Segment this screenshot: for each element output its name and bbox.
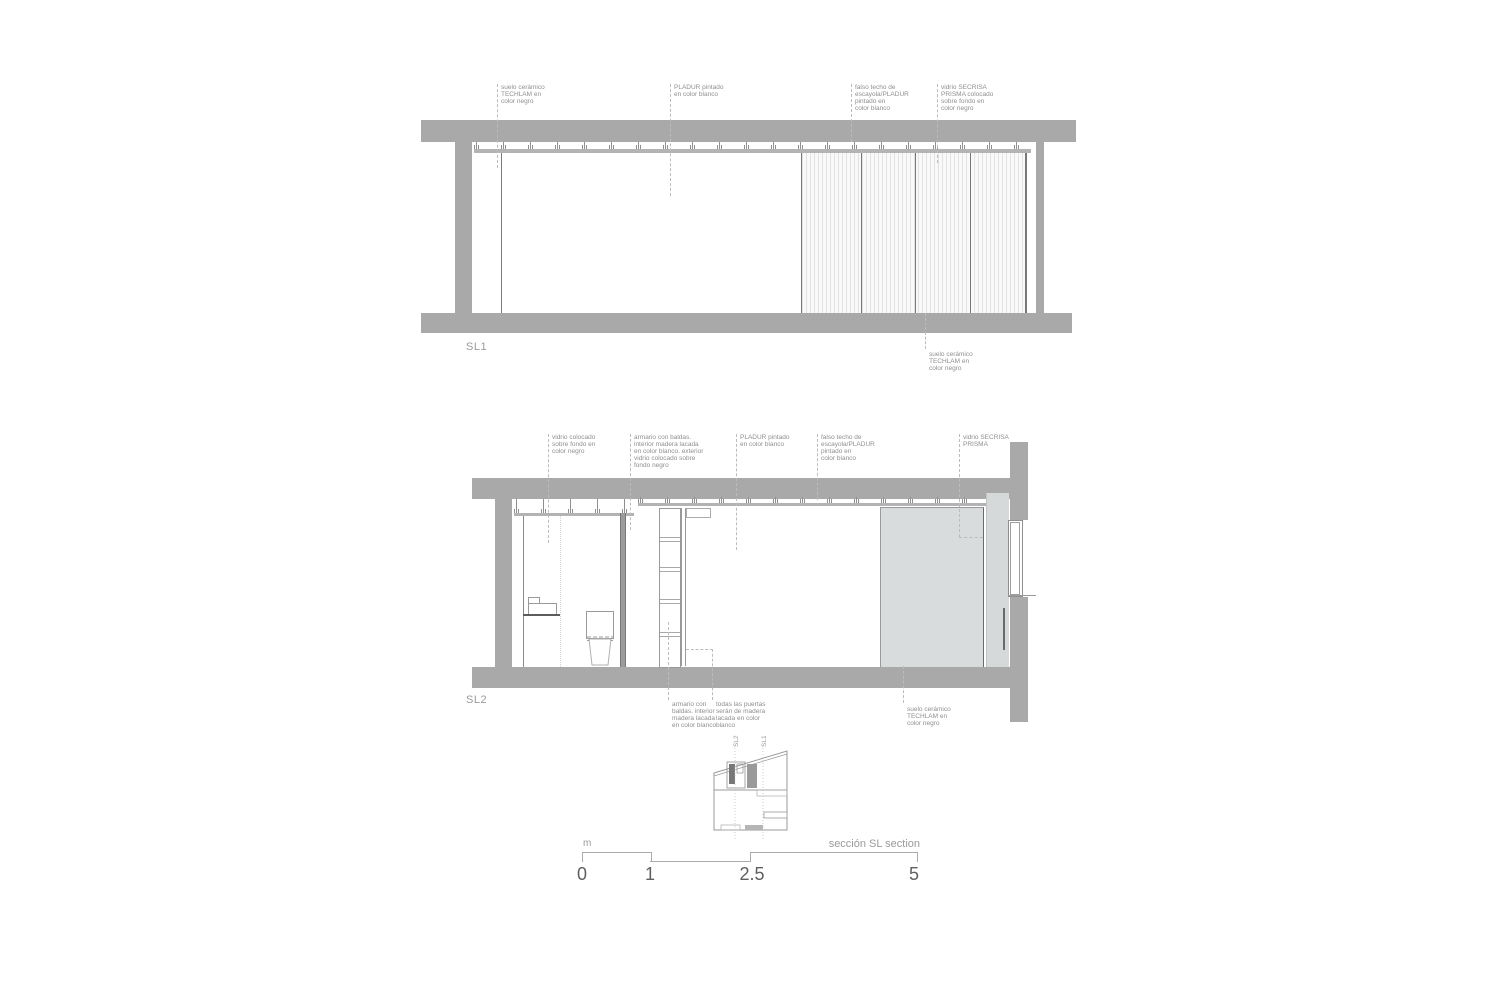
sl2-soffit-box [686,508,711,518]
sl2-left-column [495,499,512,667]
sl1-annotation-pladur: PLADUR pintado en color blanco [674,84,724,98]
sl1-ceiling-hangers [474,142,1031,149]
sl1-annotation-suelo-top: suelo cerámico TECHLAM en color negro [501,84,545,105]
scale-tick-0: 0 [577,864,587,885]
cabinet-shelf [660,599,680,604]
sl2-leader-puertas-arm [686,649,713,650]
sl1-floor-slab [421,313,1072,333]
sl2-annotation-vidrio-secrisa: vidrio SECRISA PRISMA [963,434,1009,448]
scale-segment-0-1 [582,852,652,862]
sl1-leader-suelo-bottom [925,313,926,349]
sl1-ceiling-slab [421,120,1076,142]
sl1-wall-line [501,153,502,313]
key-plan: SL2 SL1 [705,733,805,845]
sl2-tall-door-panel [986,493,1009,667]
sl2-window-inner-frame [1010,522,1020,595]
sl2-ceiling-slab [472,478,1010,499]
cabinet-shelf [660,567,680,572]
sl2-annotation-armario-top: armario con baldas. interior madera laca… [634,434,703,469]
key-plan-notch [764,812,787,818]
sl2-leader-pladur [736,434,737,550]
sl2-annotation-pladur: PLADUR pintado en color blanco [740,434,790,448]
scale-tick-1: 1 [645,864,655,885]
key-plan-cabinet [747,764,757,788]
sl2-right-wall-lower [1010,597,1028,722]
sl1-leader-pladur [670,84,671,196]
key-plan-furniture [745,825,763,830]
cabinet-shelf [660,632,680,637]
key-plan-label-sl1: SL1 [761,735,768,747]
scale-tick-5: 5 [909,864,919,885]
sl2-leader-falso-techo [817,434,818,500]
sl2-bath-ceiling-hangers [514,499,634,513]
sl1-glass-partition [801,153,1027,313]
key-plan-fixture [729,764,735,784]
sl2-shelving-cabinet [659,508,681,668]
sl2-annotation-suelo: suelo cerámico TECHLAM en color negro [907,706,951,727]
sl1-annotation-vidrio: vidrio SECRISA PRISMA colocado sobre fon… [941,84,993,112]
sl1-left-column [455,142,472,313]
sl2-bath-false-ceiling [514,513,634,516]
scale-segment-1-2.5 [650,852,751,862]
sl2-window-sill [1008,595,1036,596]
sl1-annotation-falso-techo: falso techo de escayola/PLADUR pintado e… [855,84,909,112]
sl2-leader-suelo [903,666,904,703]
sl2-bath-wall-line [523,516,524,667]
sl2-leader-armario-bottom [668,622,669,700]
drawing-caption: sección SL section [780,838,920,850]
sl2-bath-partition-wall [620,513,626,667]
sl2-main-false-ceiling [638,503,988,506]
sl2-counter-line [523,614,560,616]
architectural-sheet: suelo cerámico TECHLAM en color negro PL… [0,0,1500,1000]
sl2-door-handle [1003,608,1005,650]
scale-segment-2.5-5 [750,852,918,862]
sl2-annotation-armario-bottom: armario con baldas. interior madera laca… [672,701,716,729]
sl2-annotation-puertas: todas las puertas serán de madera lacada… [716,701,766,729]
sl2-right-wall-upper [1010,442,1028,520]
sl2-leader-vidrio-fondo [548,434,549,543]
sl2-wardrobe-panel [880,507,984,667]
sl2-annotation-vidrio-fondo: vidrio colocado sobre fondo en color neg… [552,434,595,455]
sl2-leader-vidrio-secrisa [959,434,960,537]
cabinet-shelf [660,537,680,542]
sl2-leader-armario-top [630,434,631,530]
sl2-annotation-falso-techo: falso techo de escayola/PLADUR pintado e… [821,434,875,462]
sl2-section-label: SL2 [466,694,487,706]
key-plan-label-sl2: SL2 [733,735,740,747]
sl2-toilet [586,611,616,667]
sl1-leader-suelo-top [497,84,498,168]
sl1-glass-divider [970,153,971,313]
sl1-leader-vidrio [937,84,938,163]
sl1-glass-divider [861,153,862,313]
scale-unit-label: m [583,838,591,849]
sl2-glass-dotted-line [560,516,561,667]
sl1-leader-falso-techo [851,84,852,142]
sl2-leader-vidrio-secrisa-arm [959,537,983,538]
sl1-right-column [1036,142,1044,313]
scale-tick-2.5: 2.5 [739,864,764,885]
sl1-section-label: SL1 [466,341,487,353]
sl1-glass-divider [915,153,916,313]
sl1-annotation-suelo-bottom: suelo cerámico TECHLAM en color negro [929,351,973,372]
sl2-leader-puertas [712,649,713,700]
sl2-cabinet-side-panel [681,508,686,666]
sl2-floor-slab [472,667,1010,688]
